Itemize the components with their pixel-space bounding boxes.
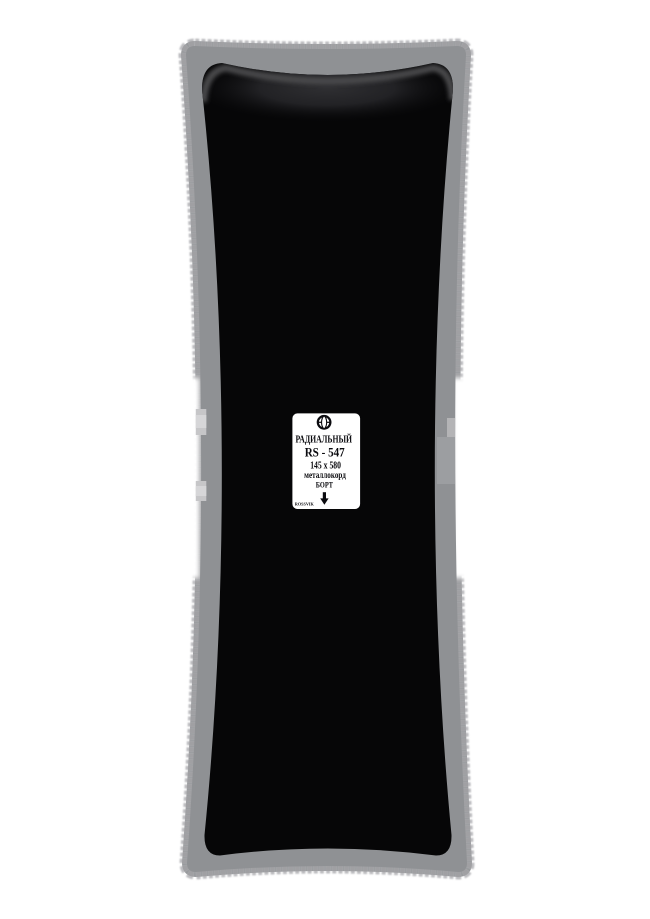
- svg-text:ROSSVIK: ROSSVIK: [295, 501, 314, 506]
- svg-text:БОРТ: БОРТ: [316, 480, 334, 489]
- svg-text:RS - 547: RS - 547: [305, 444, 345, 459]
